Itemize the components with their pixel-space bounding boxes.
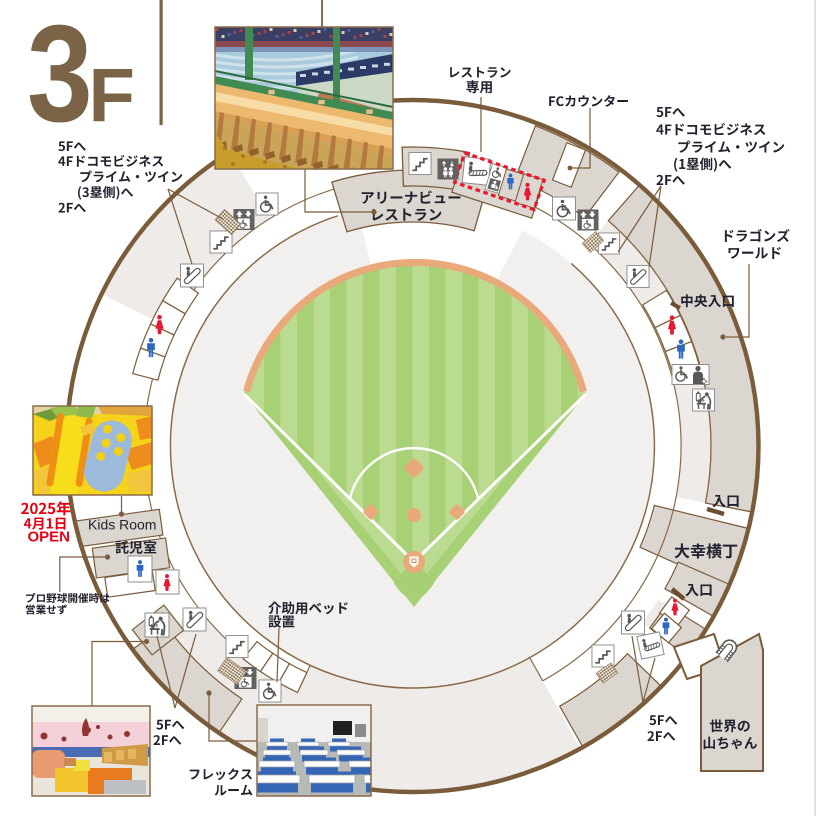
svg-text:3: 3 — [27, 0, 93, 151]
svg-text:Kids Room: Kids Room — [88, 517, 156, 533]
svg-text:F: F — [89, 53, 135, 138]
svg-text:OPEN: OPEN — [27, 529, 70, 546]
